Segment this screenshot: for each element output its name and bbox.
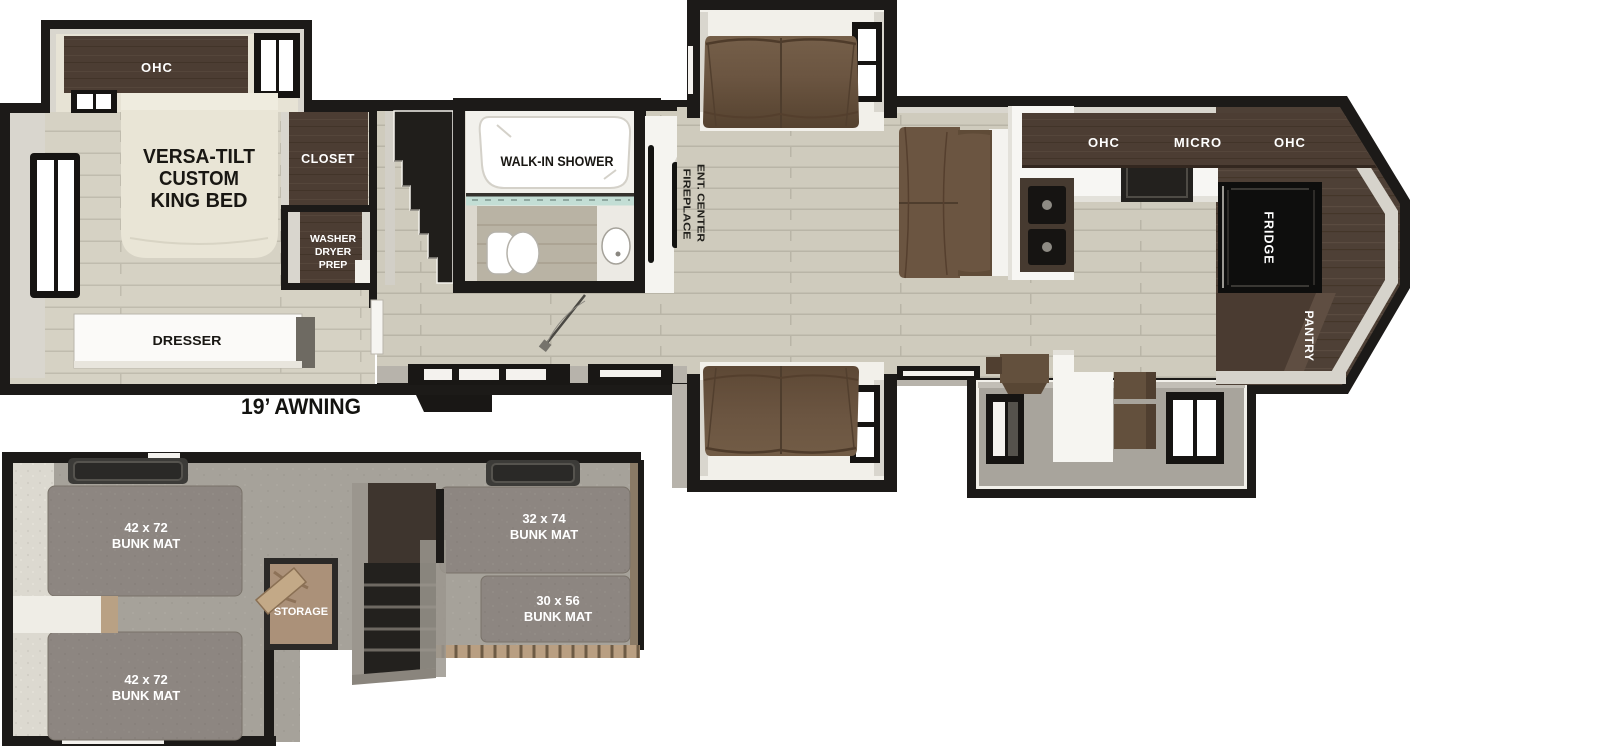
svg-text:PANTRY: PANTRY: [1302, 311, 1316, 362]
svg-text:OHC: OHC: [1274, 135, 1306, 150]
svg-text:WALK-IN SHOWER: WALK-IN SHOWER: [501, 154, 614, 169]
svg-text:BUNK MAT: BUNK MAT: [112, 688, 180, 703]
svg-text:42 x 72: 42 x 72: [124, 520, 167, 535]
svg-text:CLOSET: CLOSET: [301, 152, 355, 166]
svg-text:19’ AWNING: 19’ AWNING: [241, 394, 361, 419]
svg-text:WASHER: WASHER: [310, 233, 357, 245]
svg-text:PREP: PREP: [319, 259, 348, 271]
svg-text:32 x 74: 32 x 74: [522, 511, 566, 526]
svg-text:OHC: OHC: [141, 60, 173, 75]
svg-text:DRYER: DRYER: [315, 246, 352, 258]
svg-text:KING BED: KING BED: [151, 190, 248, 212]
svg-text:DRESSER: DRESSER: [153, 333, 223, 348]
svg-text:FRIDGE: FRIDGE: [1262, 211, 1276, 264]
svg-text:BUNK MAT: BUNK MAT: [510, 527, 578, 542]
svg-text:42 x 72: 42 x 72: [124, 672, 167, 687]
svg-text:CUSTOM: CUSTOM: [159, 168, 239, 190]
svg-text:BUNK MAT: BUNK MAT: [524, 609, 592, 624]
svg-text:BUNK MAT: BUNK MAT: [112, 536, 180, 551]
svg-text:30 x 56: 30 x 56: [536, 593, 579, 608]
svg-text:ENT. CENTER: ENT. CENTER: [694, 164, 705, 243]
svg-text:STORAGE: STORAGE: [274, 606, 328, 618]
svg-text:MICRO: MICRO: [1174, 135, 1222, 150]
svg-text:FIREPLACE: FIREPLACE: [680, 169, 691, 240]
svg-text:OHC: OHC: [1088, 135, 1120, 150]
svg-text:VERSA-TILT: VERSA-TILT: [143, 146, 255, 168]
